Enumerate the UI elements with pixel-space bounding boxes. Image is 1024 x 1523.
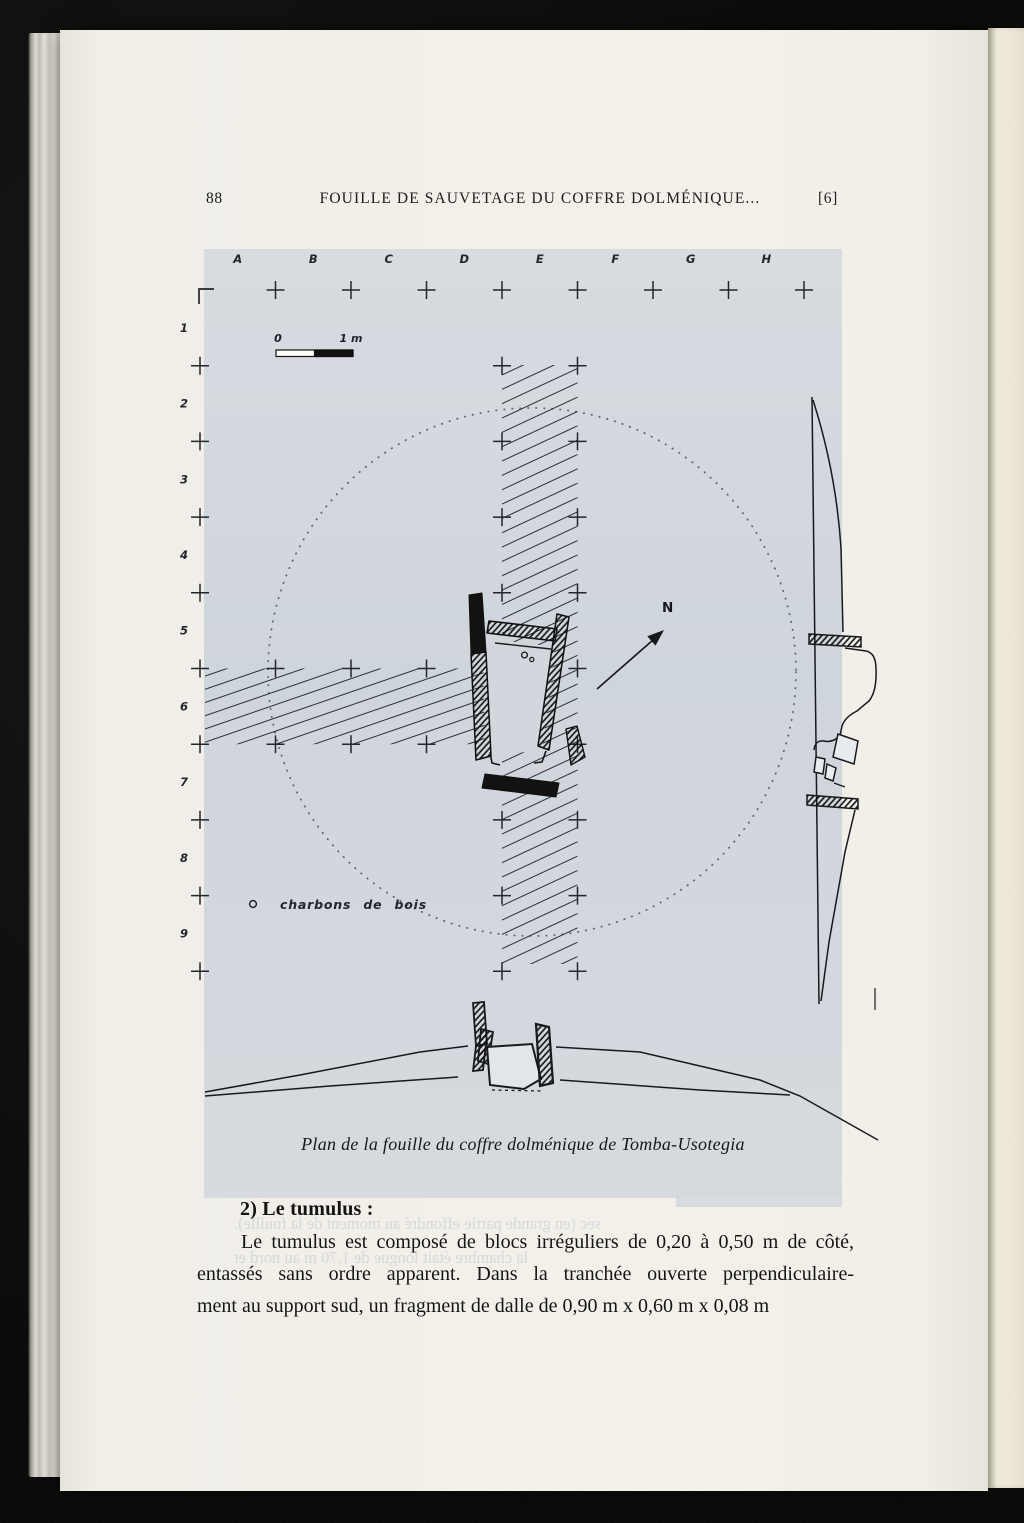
- grid-number: 6: [180, 699, 188, 713]
- grid-letter: C: [385, 252, 394, 266]
- grid-letter: F: [611, 252, 619, 266]
- figure-caption: Plan de la fouille du coffre dolménique …: [204, 1134, 842, 1155]
- section-heading: 2) Le tumulus :: [240, 1198, 374, 1221]
- charcoal-legend-label: charbons de bois: [280, 897, 427, 912]
- grid-letter: E: [536, 252, 544, 266]
- grid-number: 9: [180, 926, 188, 940]
- grid-letter: H: [761, 252, 771, 266]
- scale-zero-label: 0: [274, 332, 282, 345]
- grid-number: 5: [180, 624, 188, 638]
- grid-row-numbers: 123456789: [179, 321, 188, 941]
- paragraph-line: ment au support sud, un fragment de dall…: [197, 1291, 854, 1323]
- book-photo: 88 FOUILLE DE SAUVETAGE DU COFFRE DOLMÉN…: [0, 0, 1024, 1523]
- grid-number: 7: [180, 775, 188, 789]
- paragraph-line: Le tumulus est composé de blocs irréguli…: [197, 1227, 854, 1259]
- grid-number: 8: [180, 851, 188, 865]
- body-paragraph: Le tumulus est composé de blocs irréguli…: [197, 1227, 854, 1322]
- grid-number: 2: [180, 397, 188, 411]
- scale-one-label: 1 m: [340, 332, 363, 345]
- panel-ragged-edge: [676, 1190, 842, 1207]
- grid-number: 3: [180, 472, 188, 486]
- grid-number: 4: [179, 548, 188, 562]
- north-label: N: [662, 600, 673, 616]
- grid-number: 1: [180, 321, 188, 335]
- grid-letter: B: [309, 252, 318, 266]
- grid-letter: A: [232, 252, 242, 266]
- grid-letter: G: [686, 252, 695, 266]
- grid-letter: D: [459, 252, 469, 266]
- paragraph-line: entassés sans ordre apparent. Dans la tr…: [197, 1259, 854, 1291]
